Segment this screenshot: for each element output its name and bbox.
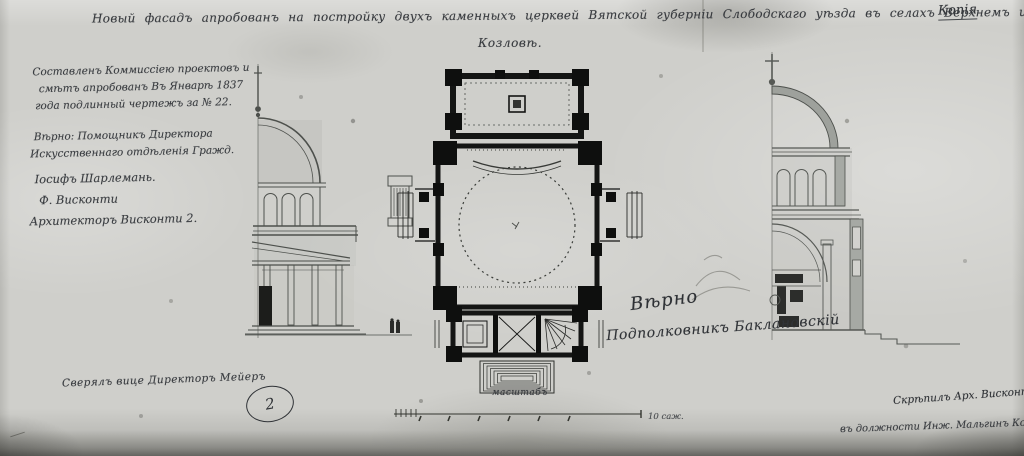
drawing-sheet: Новый фасадъ апробованъ на постройку дву… — [0, 0, 1024, 456]
bottom-right-note-2-text: въ должности Инж. Мальгинъ Ко. — [840, 418, 1024, 436]
register-number-circle: 2 — [243, 382, 297, 426]
cross-section-drawing — [755, 48, 970, 348]
paper-specks — [0, 0, 2, 2]
scale-bar — [388, 404, 658, 426]
scale-caption: масштабъ — [492, 388, 548, 398]
register-number: 2 — [264, 394, 277, 413]
title-line-1: Новый фасадъ апробованъ на постройку дву… — [92, 4, 1024, 25]
pencil-scribble — [690, 248, 762, 308]
annotation-signature: Архитекторъ Висконти 2. — [29, 207, 255, 233]
bottom-right-note-1: Скрѣпилъ Арх. Висконти — [893, 385, 1024, 407]
copy-label: Копія — [938, 2, 978, 20]
scale-unit-label: 10 саж. — [648, 412, 684, 422]
bottom-left-note: Сверялъ вице Директоръ Мейеръ — [62, 370, 266, 389]
floor-plan-drawing — [395, 65, 645, 395]
title-line-2: Козловѣ. — [478, 36, 542, 50]
stray-ink-mark — [10, 432, 25, 438]
bottom-right-note-2: въ должности Инж. Мальгинъ Ко. — [840, 416, 1024, 435]
annotation-line: Искусственнаго отдѣленія Гражд. — [30, 142, 254, 164]
left-annotation-block: Составленъ Коммиссіею проектовъ и смѣтъ … — [32, 60, 255, 233]
annotation-line: года подлинный чертежъ за № 22. — [35, 94, 253, 116]
facade-elevation-drawing — [240, 58, 420, 348]
